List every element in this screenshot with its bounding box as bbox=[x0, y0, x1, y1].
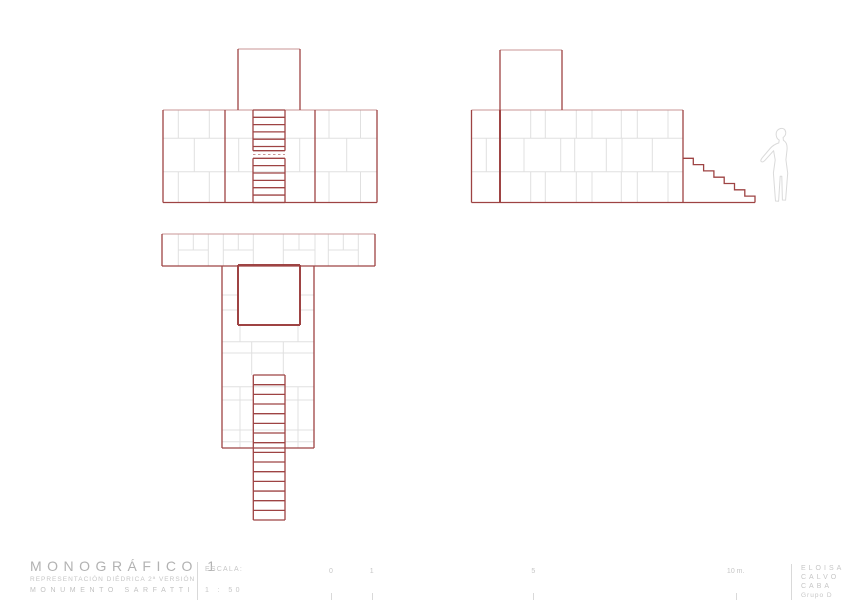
scale-label: ESCALA: bbox=[205, 566, 243, 573]
human-figure bbox=[761, 128, 788, 201]
author-divider bbox=[791, 564, 792, 600]
scale-tick-label: 5 bbox=[531, 568, 535, 575]
author-line: CALVO bbox=[801, 573, 844, 582]
scale-tick-mark bbox=[331, 593, 332, 600]
author-line: CABA bbox=[801, 582, 844, 591]
author-group: Grupo D bbox=[801, 591, 844, 600]
scale-value: 1 : 50 bbox=[205, 587, 243, 594]
scale-tick-label: 1 bbox=[370, 568, 374, 575]
side-elevation bbox=[472, 50, 756, 203]
title-block: MONOGRÁFICO 1 REPRESENTACIÓN DIÉDRICA 2ª… bbox=[0, 556, 848, 600]
author-line: ELOISA bbox=[801, 564, 844, 573]
plan-view bbox=[162, 234, 375, 520]
project-subtitle: REPRESENTACIÓN DIÉDRICA 2ª VERSIÓN bbox=[30, 576, 195, 583]
scale-tick-label: 0 bbox=[329, 568, 333, 575]
project-name: MONUMENTO SARFATTI bbox=[30, 587, 194, 594]
front-elevation bbox=[163, 49, 377, 203]
drawing-sheet: MONOGRÁFICO 1 REPRESENTACIÓN DIÉDRICA 2ª… bbox=[0, 0, 848, 600]
author-block: ELOISA CALVO CABA Grupo D bbox=[801, 564, 844, 600]
scale-tick-mark bbox=[533, 593, 534, 600]
titleblock-divider bbox=[197, 562, 198, 600]
scale-tick-mark bbox=[372, 593, 373, 600]
orthographic-drawing bbox=[0, 0, 848, 600]
scale-tick-mark bbox=[736, 593, 737, 600]
project-title: MONOGRÁFICO 1 bbox=[30, 558, 221, 574]
person-silhouette-icon bbox=[761, 128, 788, 201]
scale-tick-label: 10 m. bbox=[727, 568, 745, 575]
